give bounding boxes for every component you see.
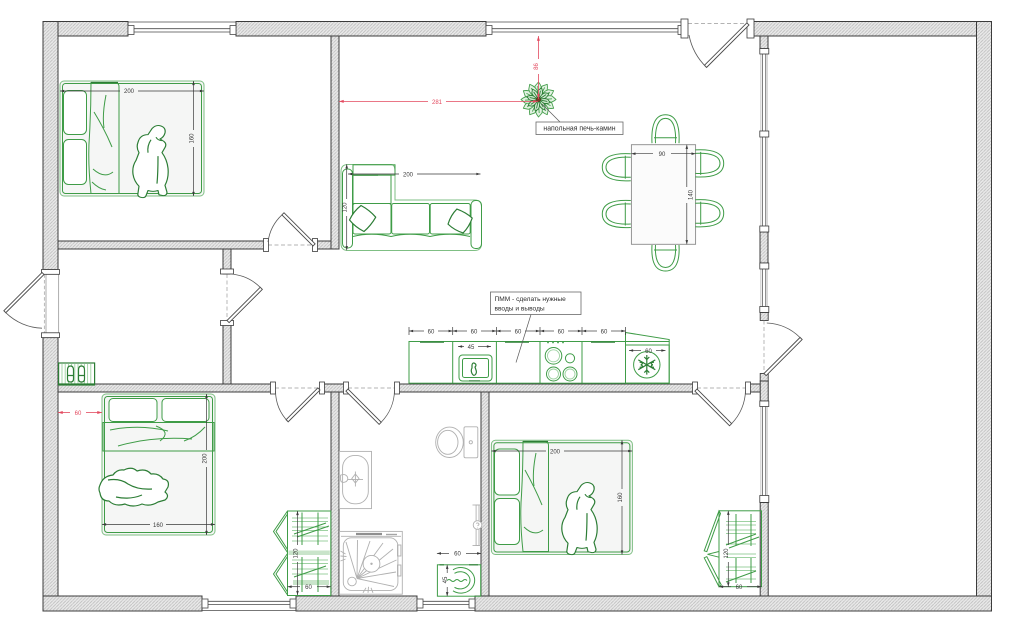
svg-text:60: 60 bbox=[454, 552, 461, 558]
svg-text:160: 160 bbox=[189, 133, 195, 144]
svg-text:120: 120 bbox=[293, 548, 299, 559]
svg-text:60: 60 bbox=[75, 411, 82, 417]
svg-text:60: 60 bbox=[645, 349, 652, 355]
svg-text:281: 281 bbox=[432, 100, 443, 106]
svg-text:86: 86 bbox=[534, 63, 540, 70]
svg-text:200: 200 bbox=[403, 172, 414, 178]
svg-text:90: 90 bbox=[659, 152, 666, 158]
svg-text:45: 45 bbox=[468, 345, 475, 351]
svg-text:140: 140 bbox=[688, 189, 694, 200]
svg-text:200: 200 bbox=[202, 453, 208, 464]
svg-text:60: 60 bbox=[558, 329, 565, 335]
svg-text:ПММ - сделать нужные: ПММ - сделать нужные bbox=[495, 296, 567, 303]
svg-text:напольная печь-камин: напольная печь-камин bbox=[543, 126, 615, 133]
svg-text:120: 120 bbox=[724, 548, 730, 559]
svg-text:160: 160 bbox=[618, 492, 624, 503]
svg-text:200: 200 bbox=[124, 89, 135, 95]
svg-text:45: 45 bbox=[443, 576, 449, 583]
svg-text:60: 60 bbox=[601, 329, 608, 335]
svg-text:60: 60 bbox=[305, 585, 312, 591]
svg-text:60: 60 bbox=[471, 329, 478, 335]
svg-text:60: 60 bbox=[736, 585, 743, 591]
svg-text:200: 200 bbox=[550, 449, 561, 455]
svg-text:60: 60 bbox=[428, 329, 435, 335]
svg-text:160: 160 bbox=[153, 523, 164, 529]
svg-text:60: 60 bbox=[515, 329, 522, 335]
svg-text:120: 120 bbox=[343, 202, 349, 213]
svg-text:вводы и выводы: вводы и выводы bbox=[495, 306, 545, 313]
